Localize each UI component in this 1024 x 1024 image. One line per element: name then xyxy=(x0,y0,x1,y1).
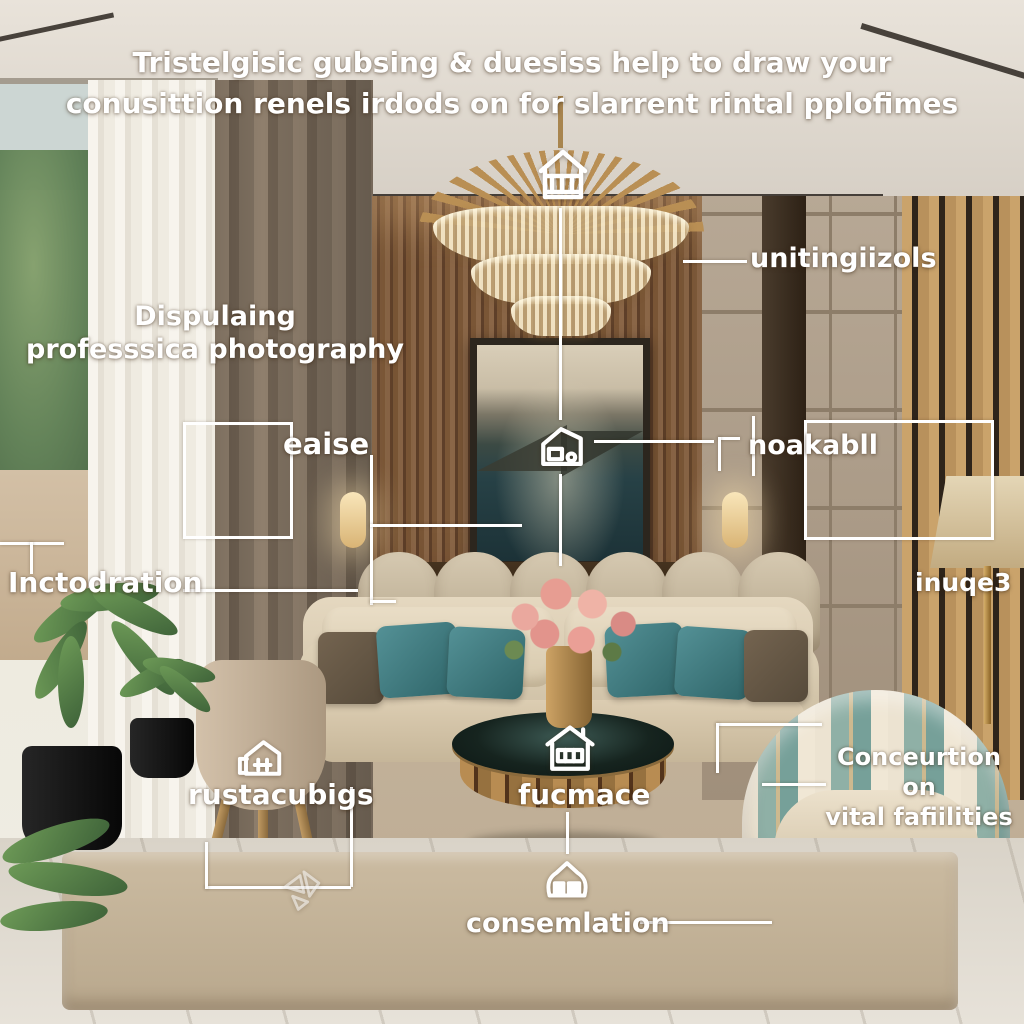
connector-line xyxy=(370,455,373,605)
house-with-columns-icon xyxy=(531,143,595,207)
label-unitingiizols: unitingiizols xyxy=(750,243,937,274)
label-eaise: eaise xyxy=(283,427,369,461)
throw-pillow xyxy=(674,626,753,701)
label-inctodration: Inctodration xyxy=(8,566,202,599)
connector-line xyxy=(718,437,721,471)
house-sketch-icon xyxy=(523,417,601,477)
label-fucmace: fucmace xyxy=(518,778,650,811)
connector-line xyxy=(716,723,719,773)
house-window-icon xyxy=(538,720,602,780)
connector-line xyxy=(762,783,826,786)
connector-line xyxy=(594,440,714,443)
label-dispulaing: Dispulaing professsica photography xyxy=(15,300,415,366)
connector-line xyxy=(718,437,740,440)
label-noakabll: noakabll xyxy=(748,430,878,461)
label-dispulaing-line2: professsica photography xyxy=(15,333,415,366)
wall-sconce xyxy=(722,492,748,548)
connector-line xyxy=(183,589,358,592)
label-consemlation: consemlation xyxy=(466,908,670,939)
connector-line xyxy=(205,842,208,889)
connector-line xyxy=(559,474,562,566)
label-inuqe3: inuqe3 xyxy=(915,568,1011,597)
throw-pillow xyxy=(744,630,808,702)
real-estate-infographic-image: Tristelgisic gubsing & duesiss help to d… xyxy=(0,0,1024,1024)
label-dispulaing-line1: Dispulaing xyxy=(15,300,415,333)
connector-line xyxy=(566,812,569,854)
connector-line xyxy=(370,600,396,603)
plant-pot xyxy=(130,718,194,778)
connector-line xyxy=(716,723,822,726)
rounded-house-icon xyxy=(536,850,598,906)
connector-line xyxy=(370,524,522,527)
flowers xyxy=(500,572,640,672)
label-conceurtion: Conceurtion on vital fafiilities xyxy=(818,742,1020,832)
label-conceurtion-line2: vital fafiilities xyxy=(818,802,1020,832)
glass-shards-icon xyxy=(270,855,334,915)
connector-line xyxy=(683,260,747,263)
wall-sconce xyxy=(340,492,366,548)
connector-line xyxy=(559,208,562,420)
headline-line1: Tristelgisic gubsing & duesiss help to d… xyxy=(12,42,1012,83)
headline: Tristelgisic gubsing & duesiss help to d… xyxy=(12,42,1012,124)
callout-box xyxy=(183,422,293,539)
headline-line2: conusittion renels irdods on for slarren… xyxy=(12,83,1012,124)
throw-pillow xyxy=(318,632,384,704)
label-conceurtion-line1: Conceurtion on xyxy=(818,742,1020,802)
plant-leaf xyxy=(58,636,84,728)
label-rustacubigs: rustacubigs xyxy=(188,778,374,811)
